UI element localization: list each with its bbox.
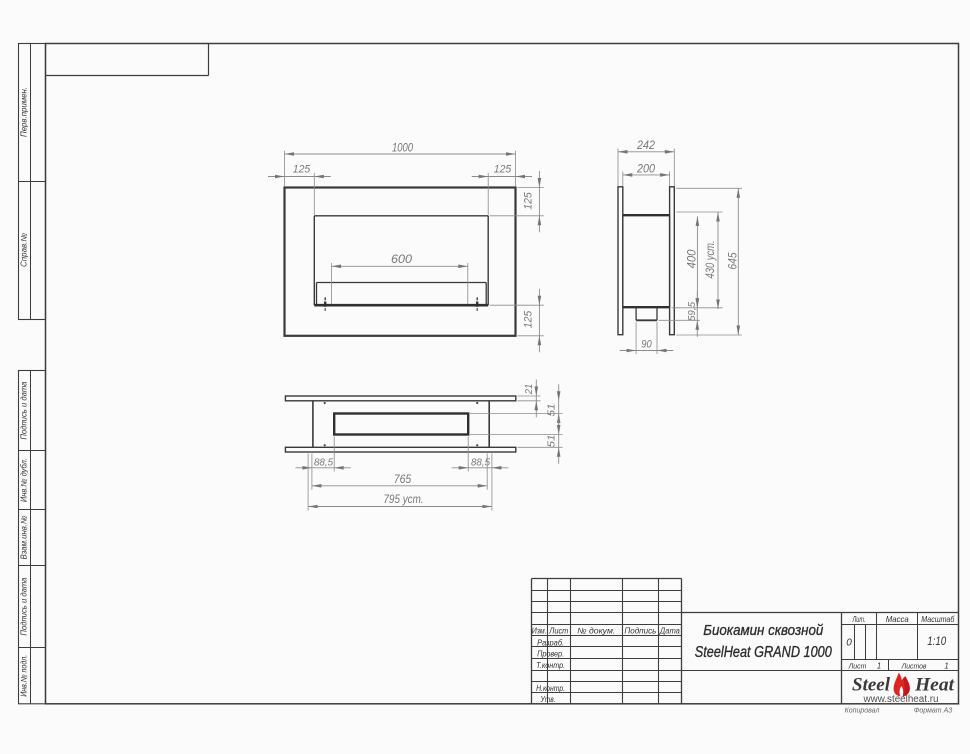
svg-text:1: 1 [944,661,948,670]
svg-text:SteelHeat GRAND 1000: SteelHeat GRAND 1000 [695,644,832,661]
svg-text:Биокамин сквозной: Биокамин сквозной [703,622,824,639]
svg-text:795 уст.: 795 уст. [384,492,424,506]
svg-text:Копировал: Копировал [845,707,880,714]
svg-text:430 уст.: 430 уст. [703,241,717,279]
svg-text:0: 0 [846,638,852,649]
svg-text:1: 1 [877,661,881,670]
svg-text:125: 125 [523,310,535,328]
svg-text:Масштаб: Масштаб [921,615,954,624]
svg-text:Подпись и дата: Подпись и дата [20,381,29,440]
svg-text:Подпись: Подпись [624,627,656,636]
svg-text:59,5: 59,5 [686,302,698,321]
svg-text:Масса: Масса [886,615,909,624]
svg-text:Взам.инв.№: Взам.инв.№ [20,515,29,559]
svg-text:600: 600 [391,252,412,266]
svg-text:Формат А3: Формат А3 [914,707,952,714]
svg-text:Инв.№ подл.: Инв.№ подл. [20,655,29,697]
svg-text:Разраб.: Разраб. [537,638,564,647]
svg-text:Н.контр.: Н.контр. [536,684,565,693]
svg-text:Подпись и дата: Подпись и дата [20,577,29,636]
svg-text:51: 51 [546,435,558,448]
svg-text:Утв.: Утв. [540,695,556,704]
svg-text:88,5: 88,5 [314,456,333,468]
svg-text:Steel: Steel [852,676,891,696]
svg-text:125: 125 [523,191,535,209]
svg-text:90: 90 [641,339,652,351]
svg-text:765: 765 [394,472,412,486]
svg-text:242: 242 [636,138,655,152]
svg-text:www.steelheat.ru: www.steelheat.ru [863,694,939,705]
svg-text:400: 400 [685,249,699,268]
svg-text:Листов: Листов [901,661,927,670]
svg-text:Инв.№ дубл.: Инв.№ дубл. [20,458,29,502]
svg-text:21: 21 [523,384,535,395]
svg-text:200: 200 [636,161,655,175]
svg-text:1:10: 1:10 [927,636,947,648]
svg-text:Heat: Heat [914,676,955,696]
svg-text:645: 645 [726,252,740,269]
svg-text:№ докум.: № докум. [577,627,615,636]
svg-text:Дата: Дата [659,627,680,636]
svg-text:1000: 1000 [392,140,413,154]
svg-text:Лист: Лист [848,661,867,670]
svg-text:51: 51 [546,404,558,417]
svg-text:Перв.примен.: Перв.примен. [20,87,29,137]
svg-text:Изм.: Изм. [532,627,547,636]
svg-text:125: 125 [293,163,311,175]
svg-text:Т.контр.: Т.контр. [536,661,565,670]
svg-text:Лист: Лист [548,627,568,636]
svg-text:125: 125 [494,163,512,175]
svg-text:Провер.: Провер. [537,650,564,659]
svg-text:Лит.: Лит. [852,615,866,624]
svg-text:Справ.№: Справ.№ [20,233,29,267]
